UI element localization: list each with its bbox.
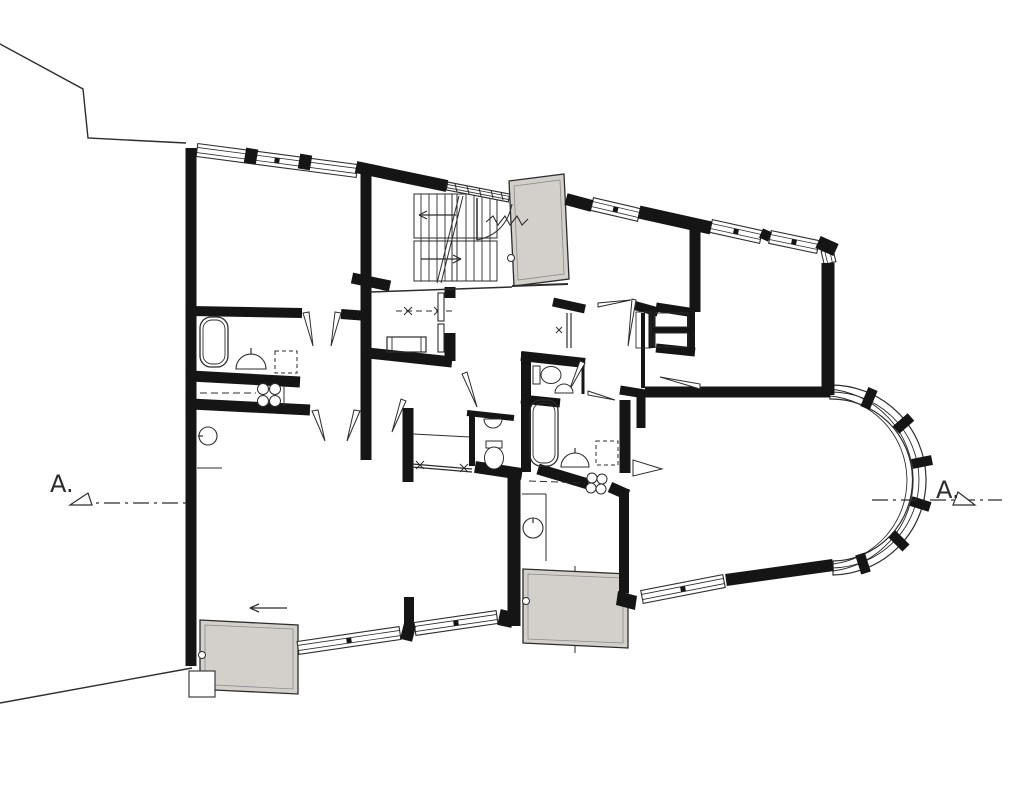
stove-burner: [258, 396, 269, 407]
door-swing: [633, 460, 662, 476]
wall-terrace-right: [566, 199, 592, 206]
toilet-cistern: [533, 366, 540, 384]
wall-bedmid-south-a: [553, 302, 585, 309]
window-mullion: [245, 155, 257, 157]
door-swing: [303, 312, 313, 346]
wall-closet-top: [656, 307, 695, 313]
window-band-top-left: [196, 144, 358, 178]
stair-flight-upper: [414, 194, 497, 238]
bathtub-inner: [533, 403, 555, 463]
wall-bedmid-south-b: [633, 305, 658, 312]
vestibule-bench: [387, 337, 426, 352]
curved-glazing-band: [829, 385, 926, 575]
bathtub: [530, 400, 558, 466]
window-band-top-right1: [710, 220, 763, 244]
stove-burner: [270, 384, 281, 395]
window-band-bottom-left: [297, 627, 401, 655]
wall-bath1-bottom: [191, 376, 300, 382]
curve-mullion: [911, 501, 930, 507]
wall-bath1-top-a: [191, 311, 302, 313]
washbasin: [236, 354, 266, 369]
stair-break-line: [437, 196, 459, 283]
door-panel: [438, 293, 444, 321]
stair-arrow-up-head: [419, 215, 427, 219]
balcony-center-drain: [523, 598, 530, 605]
door-swing: [331, 312, 341, 346]
wall-bath1-top-b: [341, 314, 368, 316]
wall-kitchen1-bottom: [191, 404, 310, 410]
property-line-top: [0, 44, 186, 143]
stove-burner: [597, 474, 607, 484]
wall-bottom-right-sloped: [726, 565, 833, 580]
window-band-top-right2: [769, 231, 820, 254]
door-swing: [588, 391, 615, 400]
stair-flight-lower: [414, 241, 497, 281]
section-label-right: A.: [936, 476, 960, 504]
wall-top-stub: [761, 233, 770, 237]
washing-machine-dashed: [275, 351, 297, 373]
floor-plan-drawing: A.A.: [0, 0, 1032, 800]
washbasin-small: [484, 419, 502, 428]
door-swing: [347, 410, 360, 441]
stove-burner: [596, 484, 606, 494]
window-mullion: [299, 161, 311, 163]
floor-plan-page: A.A.: [0, 0, 1032, 800]
balcony-center: [523, 569, 628, 648]
washbasin-small: [555, 384, 573, 393]
wall-stairhall-bit: [352, 278, 390, 286]
wall-corner-topright: [818, 242, 836, 250]
toilet-bowl: [541, 367, 561, 384]
window-band-bottom-right: [641, 575, 725, 604]
door-swing: [312, 410, 325, 441]
door-swing: [598, 300, 631, 307]
hall-floor-edge: [370, 287, 512, 292]
balcony-left-drain: [199, 652, 206, 659]
wall-closet-bottom: [656, 348, 695, 352]
stove-burner: [587, 473, 597, 483]
washbasin: [561, 453, 589, 467]
window-mullion: [402, 631, 414, 634]
door-swing: [628, 299, 636, 346]
stove-burner: [258, 384, 269, 395]
counter-edge-hall: [413, 434, 470, 437]
door-swing: [462, 372, 477, 407]
section-label-left: A.: [50, 470, 74, 498]
bathtub-inner: [203, 320, 225, 364]
stove-burner: [586, 483, 596, 493]
curve-mullion: [860, 554, 866, 573]
window-band-top-mid: [591, 198, 641, 222]
property-line-bottom: [0, 668, 192, 703]
door-panel: [438, 324, 444, 352]
wall-vestibule-bottom: [368, 353, 452, 362]
stove-burner: [270, 396, 281, 407]
window-band-bottom-mid: [414, 611, 498, 636]
washing-machine-dashed: [596, 441, 618, 465]
curve-mullion: [912, 460, 932, 464]
balcony-support-block: [189, 671, 215, 697]
terrace-top: [509, 174, 569, 286]
toilet-bowl: [485, 447, 504, 469]
terrace-drain: [508, 255, 515, 262]
